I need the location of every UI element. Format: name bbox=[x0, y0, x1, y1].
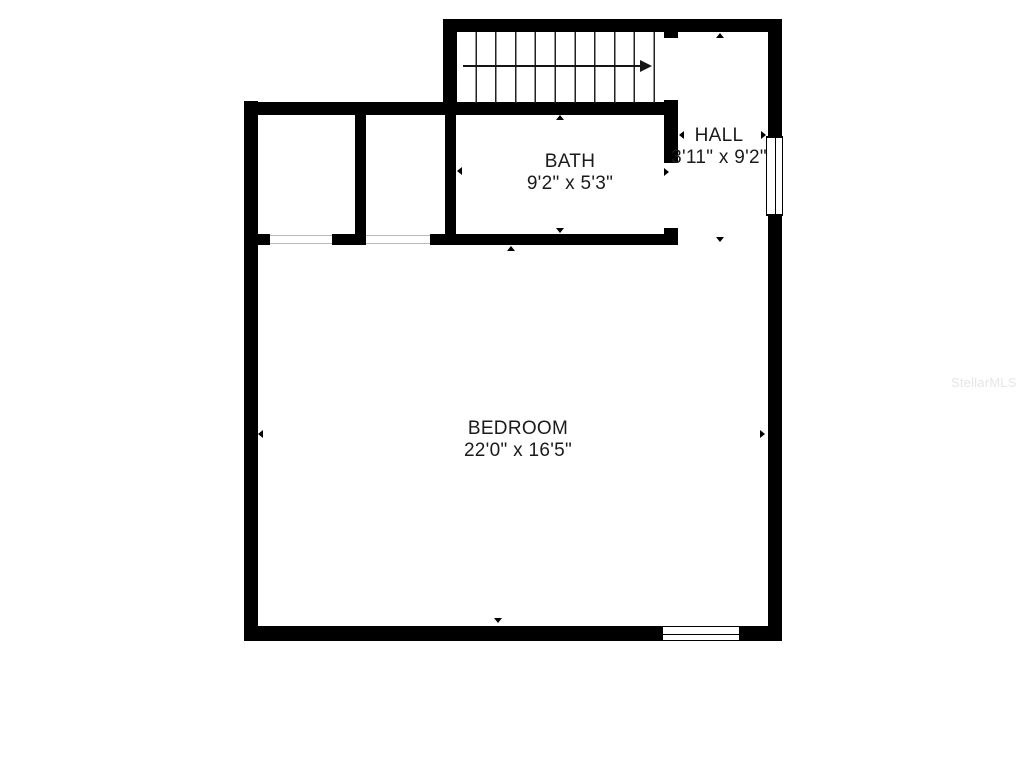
room-dimensions-bath: 9'2" x 5'3" bbox=[470, 173, 670, 195]
wall-bath-bottom bbox=[430, 234, 678, 245]
room-label-bedroom: BEDROOM 22'0" x 16'5" bbox=[418, 418, 618, 461]
marker-hall-bottom bbox=[716, 237, 724, 242]
wall-upper-band bbox=[244, 102, 678, 115]
closet-door-opening-left bbox=[270, 235, 332, 244]
wall-stair-left bbox=[443, 19, 457, 115]
room-dimensions-bedroom: 22'0" x 16'5" bbox=[418, 440, 618, 462]
marker-bedroom-left bbox=[258, 430, 263, 438]
watermark: StellarMLS bbox=[951, 375, 1017, 390]
wall-left bbox=[244, 101, 258, 641]
wall-closet-bottom-b bbox=[332, 234, 366, 245]
stairs-arrow-head-icon bbox=[640, 60, 652, 72]
marker-bedroom-top bbox=[507, 246, 515, 251]
room-name-bedroom: BEDROOM bbox=[418, 418, 618, 440]
room-name-bath: BATH bbox=[470, 151, 670, 173]
closet-door-opening-right bbox=[366, 235, 430, 244]
bedroom-window bbox=[659, 626, 743, 641]
wall-hall-left-stub-bottom bbox=[664, 228, 678, 245]
room-label-bath: BATH 9'2" x 5'3" bbox=[470, 151, 670, 194]
wall-closet-divider bbox=[355, 102, 366, 245]
marker-hall-top bbox=[716, 33, 724, 38]
wall-top bbox=[443, 19, 782, 32]
room-label-hall: HALL 3'11" x 9'2" bbox=[662, 125, 776, 168]
wall-right-lower bbox=[768, 216, 782, 641]
floorplan: BATH 9'2" x 5'3" HALL 3'11" x 9'2" BEDRO… bbox=[0, 0, 1024, 768]
wall-bath-left bbox=[445, 102, 456, 245]
marker-bath-bottom bbox=[556, 228, 564, 233]
wall-hall-left-stub-top bbox=[664, 19, 678, 38]
staircase bbox=[457, 32, 655, 103]
room-dimensions-hall: 3'11" x 9'2" bbox=[662, 147, 776, 169]
marker-bath-left bbox=[457, 167, 462, 175]
wall-closet-bottom-a bbox=[244, 234, 270, 245]
wall-right-upper bbox=[768, 19, 782, 136]
marker-bedroom-bottom bbox=[494, 618, 502, 623]
marker-bath-top bbox=[556, 115, 564, 120]
stairs-direction-arrow bbox=[463, 65, 641, 67]
room-name-hall: HALL bbox=[662, 125, 776, 147]
marker-bedroom-right bbox=[760, 430, 765, 438]
